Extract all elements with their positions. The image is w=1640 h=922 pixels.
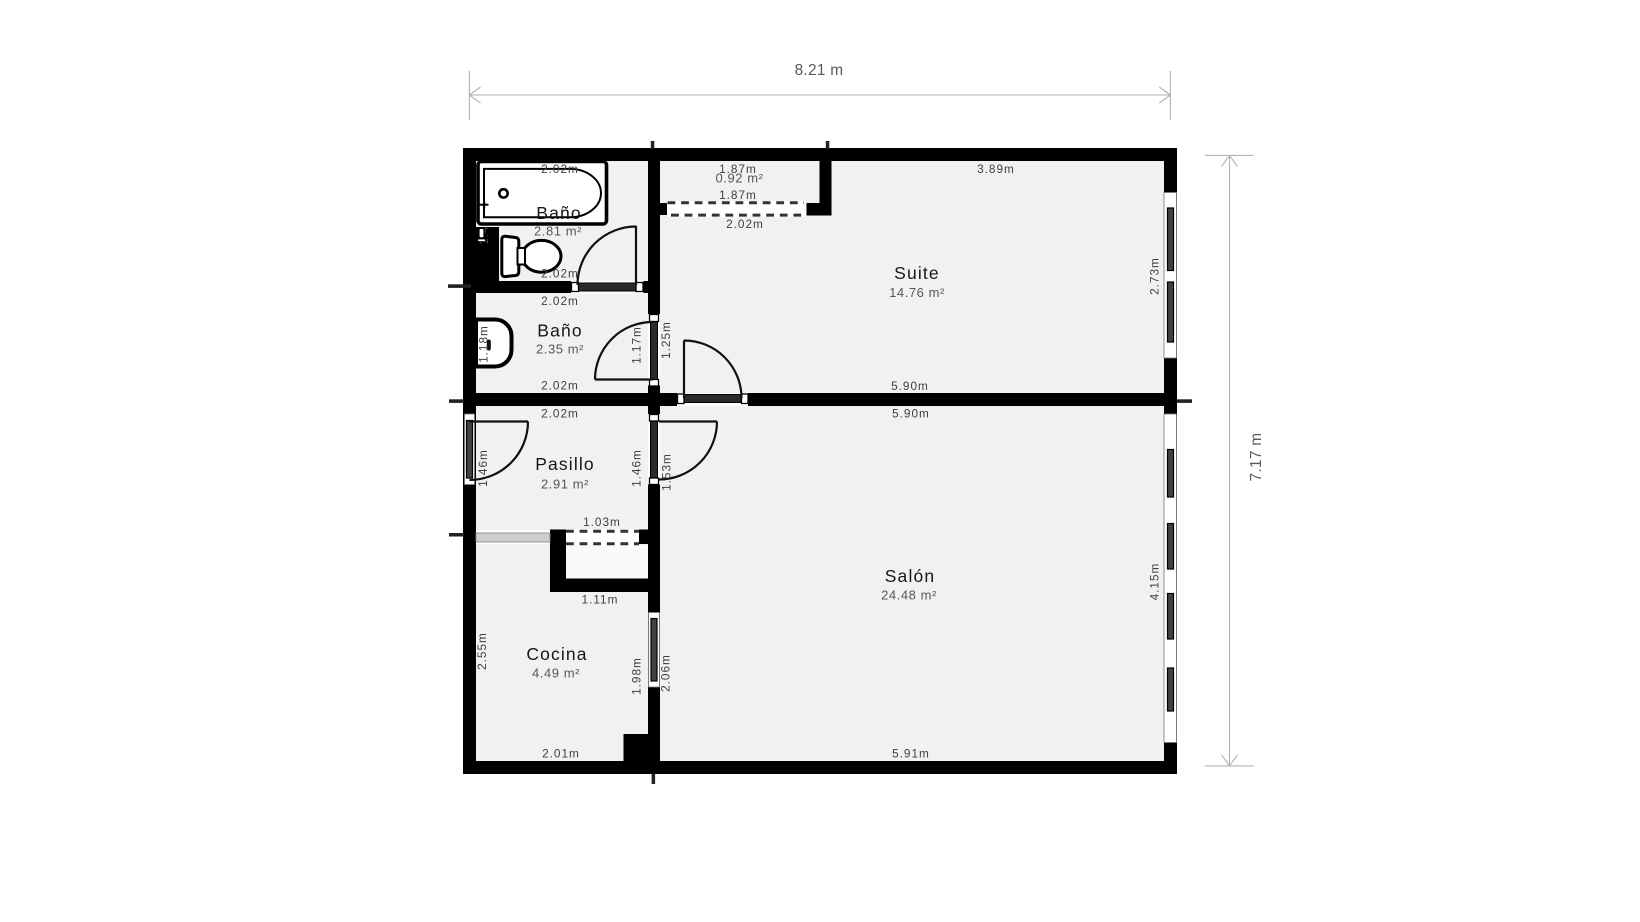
svg-text:2.73m: 2.73m bbox=[1148, 257, 1162, 295]
svg-text:1.98m: 1.98m bbox=[630, 657, 644, 695]
svg-text:1.87m: 1.87m bbox=[719, 188, 757, 202]
svg-text:Pasillo: Pasillo bbox=[535, 454, 595, 474]
svg-text:4.15m: 4.15m bbox=[1148, 563, 1162, 601]
svg-text:Salón: Salón bbox=[885, 566, 936, 586]
svg-text:2.02m: 2.02m bbox=[541, 162, 579, 176]
svg-text:2.81 m²: 2.81 m² bbox=[534, 224, 582, 239]
svg-text:2.02m: 2.02m bbox=[541, 407, 579, 421]
svg-text:Baño: Baño bbox=[537, 321, 582, 341]
svg-text:7.17 m: 7.17 m bbox=[1248, 433, 1265, 482]
svg-text:1.17m: 1.17m bbox=[630, 326, 644, 364]
svg-text:Cocina: Cocina bbox=[526, 644, 587, 664]
svg-text:1.46m: 1.46m bbox=[630, 449, 644, 487]
svg-text:2.91 m²: 2.91 m² bbox=[541, 477, 589, 492]
svg-text:Baño: Baño bbox=[536, 203, 581, 223]
svg-text:24.48 m²: 24.48 m² bbox=[881, 588, 937, 603]
svg-text:2.06m: 2.06m bbox=[659, 654, 673, 692]
svg-text:Suite: Suite bbox=[894, 263, 940, 283]
svg-text:8.21 m: 8.21 m bbox=[795, 62, 844, 79]
svg-text:2.02m: 2.02m bbox=[726, 217, 764, 231]
svg-text:1.03m: 1.03m bbox=[583, 515, 621, 529]
svg-text:1.25m: 1.25m bbox=[659, 321, 673, 359]
svg-text:2.35 m²: 2.35 m² bbox=[536, 342, 584, 357]
svg-text:1.18m: 1.18m bbox=[477, 325, 491, 363]
svg-text:2.02m: 2.02m bbox=[541, 294, 579, 308]
svg-text:2.02m: 2.02m bbox=[541, 379, 579, 393]
svg-text:5.90m: 5.90m bbox=[892, 407, 930, 421]
svg-text:14.76 m²: 14.76 m² bbox=[889, 285, 945, 300]
svg-text:1.11m: 1.11m bbox=[582, 593, 619, 607]
svg-text:4.49 m²: 4.49 m² bbox=[532, 666, 580, 681]
svg-text:1.46m: 1.46m bbox=[476, 449, 490, 487]
svg-text:5.91m: 5.91m bbox=[892, 747, 930, 761]
svg-text:2.01m: 2.01m bbox=[542, 747, 580, 761]
svg-text:1.53m: 1.53m bbox=[660, 453, 674, 491]
svg-text:2.02m: 2.02m bbox=[541, 266, 579, 280]
svg-text:2.55m: 2.55m bbox=[475, 632, 489, 670]
svg-text:0.92 m²: 0.92 m² bbox=[716, 171, 764, 186]
svg-text:5.90m: 5.90m bbox=[891, 379, 929, 393]
svg-text:3.89m: 3.89m bbox=[977, 162, 1015, 176]
